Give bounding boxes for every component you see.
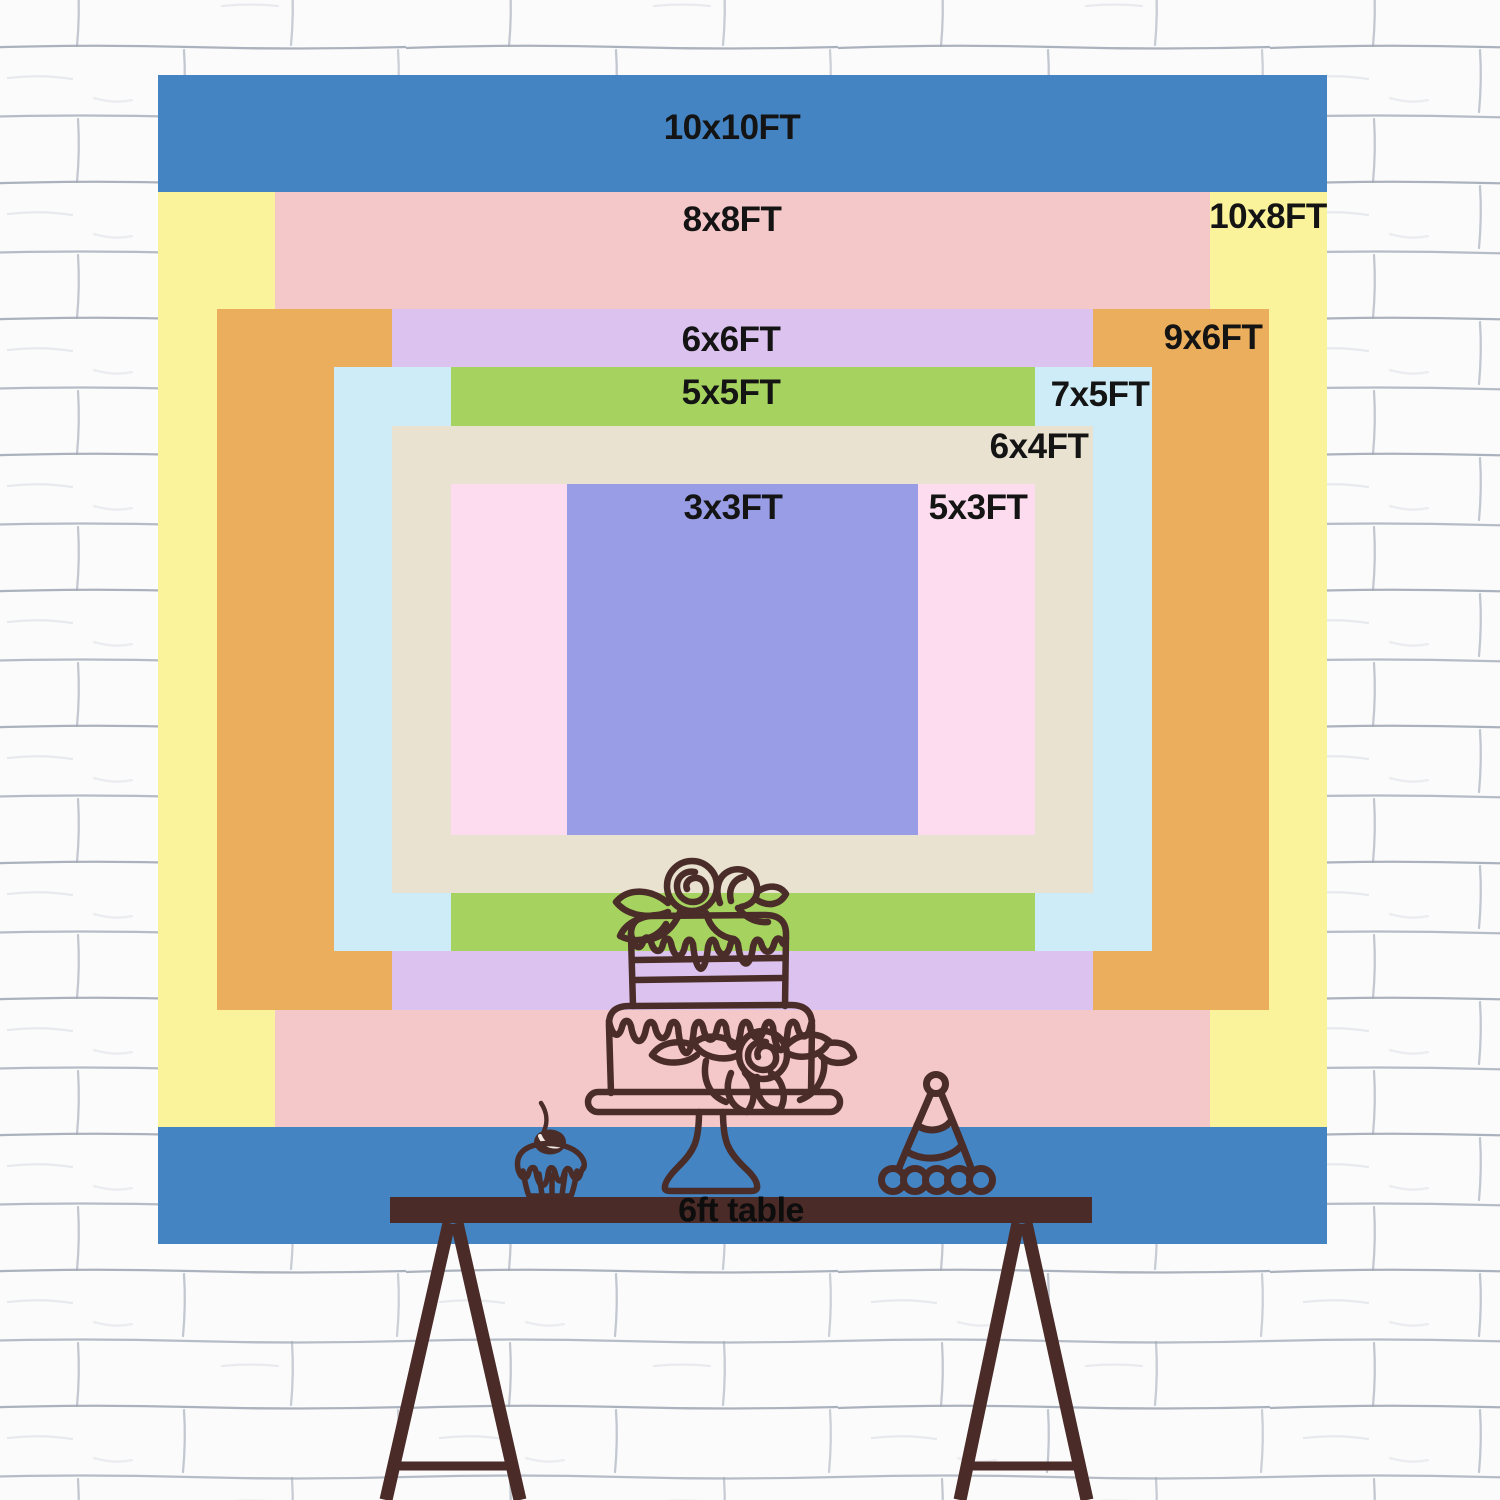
table-size-label: 6ft table — [678, 1192, 804, 1231]
party-hat-icon — [882, 1075, 993, 1192]
cupcake-icon — [517, 1103, 584, 1196]
party-hat-trim — [882, 1169, 993, 1192]
table — [386, 1197, 1092, 1500]
backdrop-size-chart: 10x10FT 10x8FT 8x8FT 9x6FT 6x6FT 7x5FT 5… — [0, 0, 1500, 1500]
birthday-cake-icon — [588, 861, 854, 1191]
table-legs — [386, 1223, 1087, 1500]
illustration-overlay — [0, 0, 1500, 1500]
